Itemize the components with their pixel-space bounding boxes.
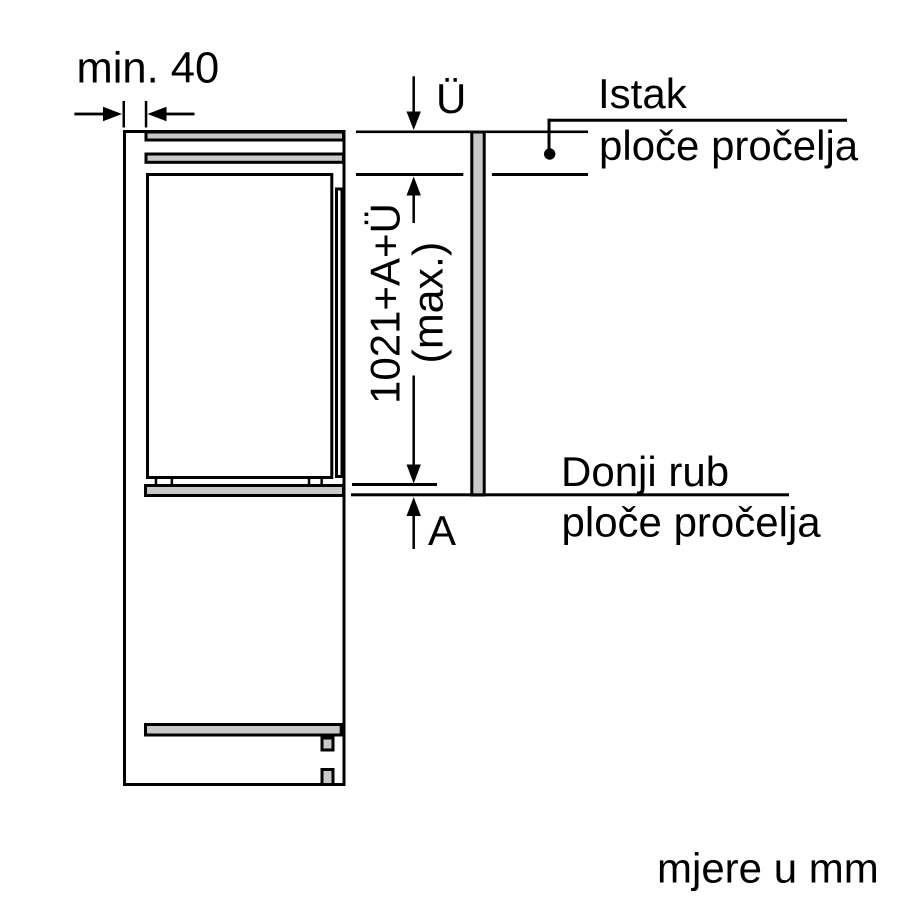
svg-text:1021+A+Ü: 1021+A+Ü <box>362 203 409 404</box>
svg-text:min. 40: min. 40 <box>77 45 220 93</box>
svg-text:A: A <box>428 507 456 554</box>
svg-text:(max.): (max.) <box>405 242 453 364</box>
svg-text:mjere u mm: mjere u mm <box>657 845 879 892</box>
svg-text:ploče pročelja: ploče pročelja <box>599 122 859 169</box>
svg-text:ploče pročelja: ploče pročelja <box>562 499 822 546</box>
svg-text:Ü: Ü <box>436 75 466 122</box>
svg-text:Donji rub: Donji rub <box>561 448 729 495</box>
svg-text:Istak: Istak <box>598 70 688 117</box>
